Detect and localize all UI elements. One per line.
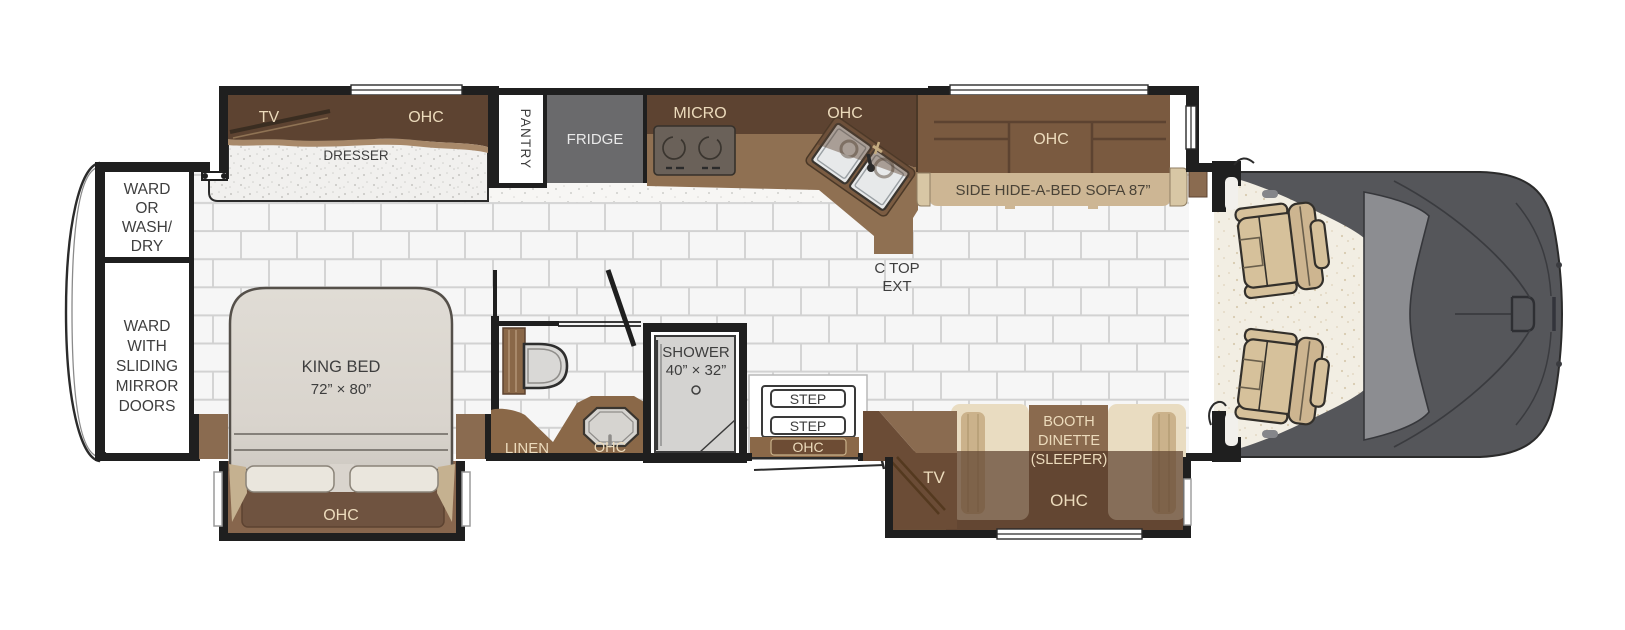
svg-text:DOORS: DOORS xyxy=(119,398,176,415)
svg-text:PANTRY: PANTRY xyxy=(518,109,533,170)
svg-text:STEP: STEP xyxy=(790,418,827,434)
svg-text:C TOP: C TOP xyxy=(874,260,919,277)
svg-text:OHC: OHC xyxy=(1033,131,1069,148)
svg-text:BOOTH: BOOTH xyxy=(1043,414,1095,430)
svg-text:40” × 32”: 40” × 32” xyxy=(666,362,726,379)
svg-text:TV: TV xyxy=(259,109,280,126)
svg-text:DINETTE: DINETTE xyxy=(1038,433,1100,449)
svg-text:OHC: OHC xyxy=(408,109,444,126)
svg-text:OHC: OHC xyxy=(827,105,863,122)
svg-text:OHC: OHC xyxy=(792,439,823,455)
svg-text:DRY: DRY xyxy=(131,238,163,255)
svg-text:(SLEEPER): (SLEEPER) xyxy=(1031,452,1108,468)
svg-text:KING BED: KING BED xyxy=(302,358,381,376)
svg-text:WARD: WARD xyxy=(124,318,171,335)
svg-text:72” × 80”: 72” × 80” xyxy=(311,381,371,398)
svg-text:TV: TV xyxy=(923,468,945,487)
svg-text:MICRO: MICRO xyxy=(673,105,726,122)
svg-text:OHC: OHC xyxy=(1050,491,1088,510)
svg-text:SHOWER: SHOWER xyxy=(662,344,730,361)
svg-text:FRIDGE: FRIDGE xyxy=(567,131,624,148)
svg-text:SLIDING: SLIDING xyxy=(116,358,178,375)
svg-text:WASH/: WASH/ xyxy=(122,219,173,236)
svg-text:EXT: EXT xyxy=(882,278,911,295)
svg-text:OR: OR xyxy=(135,200,158,217)
svg-text:SIDE HIDE-A-BED SOFA 87”: SIDE HIDE-A-BED SOFA 87” xyxy=(955,182,1150,199)
svg-text:WARD: WARD xyxy=(124,181,171,198)
svg-text:MIRROR: MIRROR xyxy=(116,378,179,395)
svg-text:WITH: WITH xyxy=(127,338,167,355)
svg-text:DRESSER: DRESSER xyxy=(323,148,389,163)
svg-text:OHC: OHC xyxy=(323,507,359,524)
svg-text:STEP: STEP xyxy=(790,391,827,407)
